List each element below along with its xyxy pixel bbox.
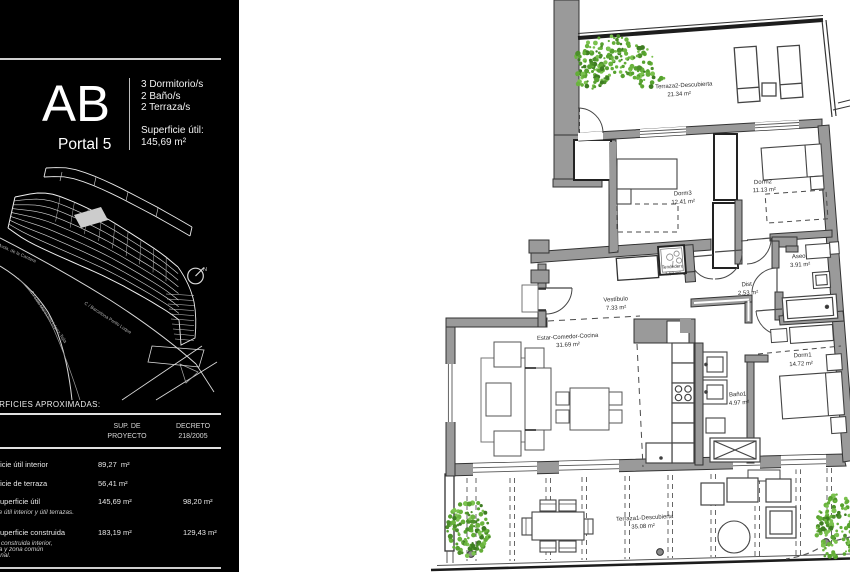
svg-text:1.58 m²: 1.58 m² [665,270,681,276]
svg-text:Dist: Dist [741,282,752,289]
svg-text:Vestíbulo: Vestíbulo [603,296,629,303]
svg-text:4.97 m²: 4.97 m² [729,400,750,407]
svg-text:Aseo: Aseo [792,254,807,261]
svg-text:Dorm3: Dorm3 [674,191,693,198]
svg-text:Estar-Comedor-Cocina: Estar-Comedor-Cocina [537,333,599,342]
svg-text:21.34 m²: 21.34 m² [667,91,691,98]
svg-text:Terraza2-Descubierta: Terraza2-Descubierta [655,81,713,90]
svg-text:Dorm1: Dorm1 [794,352,813,359]
svg-text:7.33 m²: 7.33 m² [606,305,627,312]
svg-text:Baño1: Baño1 [729,392,747,399]
svg-text:12.41 m²: 12.41 m² [671,199,695,206]
svg-text:Dorm2: Dorm2 [754,179,773,186]
svg-text:11.13 m²: 11.13 m² [753,187,777,194]
svg-text:35.08 m²: 35.08 m² [631,523,655,530]
svg-text:2.53 m²: 2.53 m² [738,290,759,297]
svg-text:31.69 m²: 31.69 m² [556,342,580,349]
svg-text:3.91 m²: 3.91 m² [790,262,811,269]
svg-text:14.72 m²: 14.72 m² [789,361,813,368]
